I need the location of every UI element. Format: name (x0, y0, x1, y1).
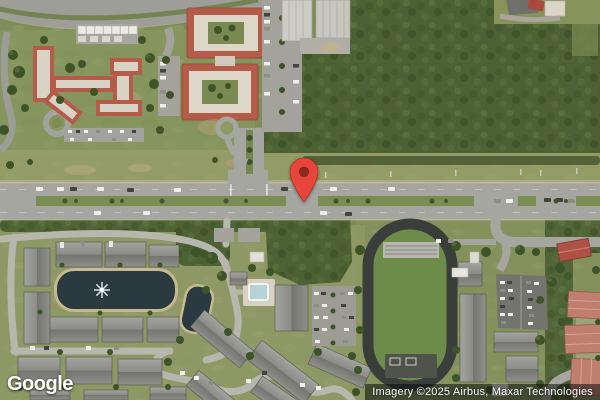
clubhouse-roof (230, 272, 247, 285)
pond-large (54, 268, 178, 312)
marker-inner-dot (299, 167, 309, 177)
google-logo[interactable]: Google (7, 373, 73, 396)
imagery-attribution: Imagery ©2025 Airbus, Maxar Technologies (365, 384, 600, 400)
pond-fountain (94, 282, 110, 298)
courtyard-building-north (187, 8, 265, 58)
trailer-lot (76, 24, 138, 44)
marker-pin-icon[interactable] (290, 158, 318, 202)
map-viewport[interactable]: Google Imagery ©2025 Airbus, Maxar Techn… (0, 0, 600, 400)
residential-parking (312, 286, 356, 346)
running-track (368, 224, 452, 386)
corner-buildings (494, 0, 600, 24)
map-marker[interactable] (290, 158, 318, 202)
